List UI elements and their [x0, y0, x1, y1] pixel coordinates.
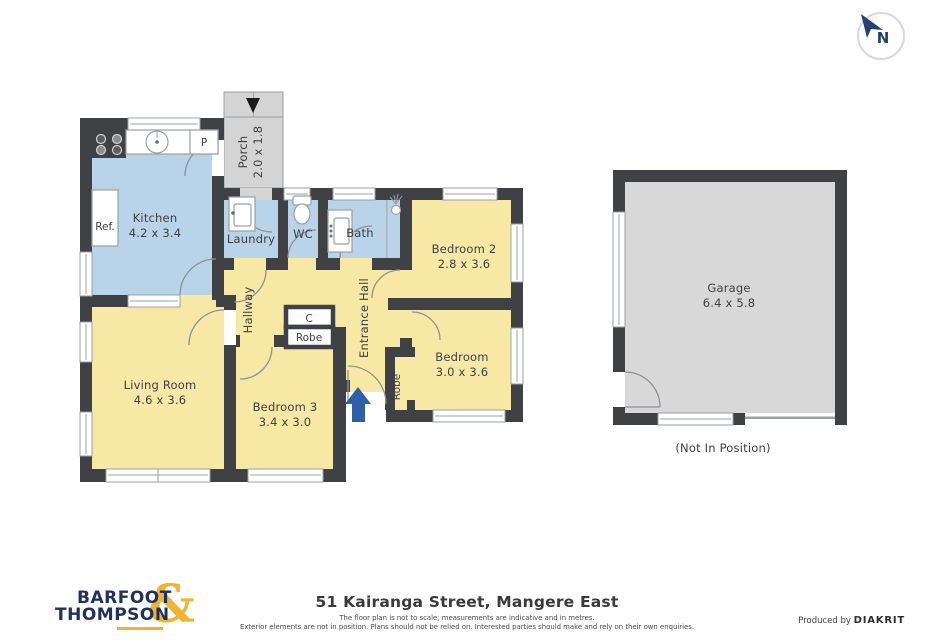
robe-hall-label: Robe	[296, 332, 322, 344]
laundry-tub-icon	[229, 197, 255, 231]
kitchen-label: Kitchen	[133, 211, 178, 225]
produced-by: Produced by DIAKRIT	[798, 615, 905, 626]
bedroom-dims: 3.0 x 3.6	[436, 365, 489, 379]
porch-dims: 2.0 x 1.8	[251, 126, 265, 179]
bedroom2-label: Bedroom 2	[432, 242, 497, 256]
cupboard-label: C	[305, 313, 312, 325]
bedroom2-dims: 2.8 x 3.6	[438, 257, 491, 271]
bedroom3-dims: 3.4 x 3.0	[259, 415, 312, 429]
bedroom-label: Bedroom	[435, 350, 488, 364]
stove-icon	[92, 130, 126, 158]
disclaimer-line1: The floor plan is not to scale; measurem…	[117, 614, 817, 623]
pantry-label: P	[201, 137, 207, 149]
robe-bedroom-label: Robe	[391, 374, 403, 400]
garage-label: Garage	[707, 281, 750, 295]
producer-name: DIAKRIT	[854, 615, 905, 626]
laundry-label: Laundry	[227, 232, 275, 246]
floorplan-svg: Kitchen 4.2 x 3.4 Ref. P Porch 2.0 x 1.8…	[0, 0, 934, 640]
kitchen-sink-icon	[146, 131, 168, 153]
living-dims: 4.6 x 3.6	[134, 393, 187, 407]
disclaimer-line2: Exterior elements are not in position. P…	[117, 623, 817, 632]
logo-line2: THOMPSON	[55, 605, 170, 625]
living-label: Living Room	[124, 378, 197, 392]
kitchen-dims: 4.2 x 3.4	[129, 226, 182, 240]
address-title: 51 Kairanga Street, Mangere East	[234, 593, 700, 611]
north-label: N	[877, 29, 890, 47]
bedroom3-label: Bedroom 3	[253, 400, 318, 414]
toilet-icon	[293, 196, 311, 224]
hallway-label: Hallway	[241, 287, 255, 334]
disclaimer: The floor plan is not to scale; measurem…	[117, 614, 817, 631]
produced-by-text: Produced by	[798, 616, 851, 626]
garage-door-opening	[745, 417, 835, 420]
logo-tagline	[117, 627, 163, 630]
north-indicator: N	[858, 13, 904, 59]
bath-label: Bath	[346, 226, 374, 240]
porch-label: Porch	[236, 136, 250, 169]
wc-label: WC	[293, 227, 313, 241]
footer: & BARFOOT THOMPSON 51 Kairanga Street, M…	[0, 585, 934, 640]
garage-note: (Not In Position)	[675, 441, 770, 455]
fridge-label: Ref.	[95, 221, 115, 233]
fridge-icon	[92, 190, 118, 246]
garage-dims: 6.4 x 5.8	[703, 296, 756, 310]
entrance-hall-label: Entrance Hall	[357, 278, 371, 358]
